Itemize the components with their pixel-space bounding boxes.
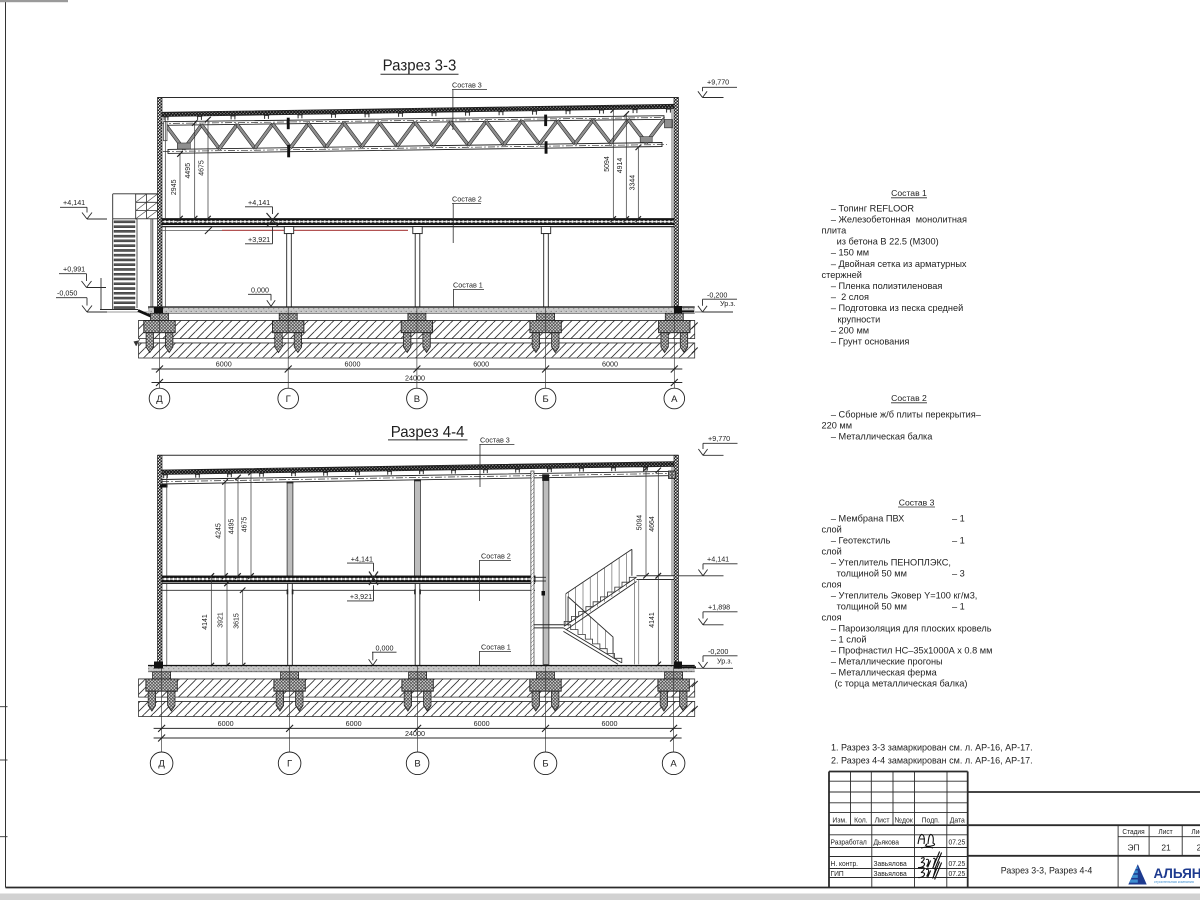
svg-text:– Подготовка из песка средней: – Подготовка из песка средней <box>831 303 963 313</box>
svg-text:-0,200: -0,200 <box>708 647 728 656</box>
svg-text:4495: 4495 <box>185 163 192 179</box>
svg-text:3344: 3344 <box>629 175 636 191</box>
svg-text:Состав 1: Состав 1 <box>891 188 927 198</box>
svg-text:4495: 4495 <box>229 519 236 535</box>
svg-text:ЭП: ЭП <box>1127 843 1139 853</box>
svg-text:слоя: слоя <box>822 580 842 590</box>
svg-text:Завьялова: Завьялова <box>874 860 907 868</box>
svg-text:Лист: Лист <box>875 815 890 824</box>
svg-text:– Утеплитель Эковер Y=100 кг/м: – Утеплитель Эковер Y=100 кг/м3, <box>831 591 977 601</box>
svg-text:4141: 4141 <box>649 612 656 628</box>
svg-text:слоя: слоя <box>822 613 842 623</box>
svg-text:Разрез 3-3, Разрез 4-4: Разрез 3-3, Разрез 4-4 <box>1001 865 1093 875</box>
svg-text:+9,770: +9,770 <box>707 78 729 87</box>
svg-text:1. Разрез 3-3 замаркирован см.: 1. Разрез 3-3 замаркирован см. л. АР-16,… <box>831 743 1033 753</box>
svg-text:Состав 3: Состав 3 <box>899 497 935 507</box>
svg-text:5094: 5094 <box>637 515 644 531</box>
svg-text:В: В <box>414 394 420 405</box>
svg-text:6000: 6000 <box>346 719 362 728</box>
svg-text:(с торца металлическая балка): (с торца металлическая балка) <box>835 679 968 689</box>
svg-text:Состав 3: Состав 3 <box>480 436 510 445</box>
svg-text:Состав 3: Состав 3 <box>452 81 482 90</box>
svg-text:4245: 4245 <box>216 523 223 539</box>
svg-text:Б: Б <box>542 394 548 405</box>
svg-text:2. Разрез 4-4 замаркирован см.: 2. Разрез 4-4 замаркирован см. л. АР-16,… <box>831 756 1033 766</box>
svg-text:Состав 2: Состав 2 <box>481 552 511 561</box>
svg-text:АЛЬЯНС: АЛЬЯНС <box>1154 866 1200 881</box>
svg-text:– 1: – 1 <box>952 602 965 612</box>
svg-text:Д: Д <box>156 394 163 405</box>
svg-text:+1,898: +1,898 <box>708 603 730 612</box>
svg-text:Состав 1: Состав 1 <box>453 281 483 290</box>
svg-text:-0,050: -0,050 <box>57 289 77 298</box>
svg-text:Д: Д <box>158 759 165 770</box>
svg-text:+3,921: +3,921 <box>248 235 270 244</box>
svg-text:А: А <box>670 759 677 770</box>
svg-text:Ур.з.: Ур.з. <box>717 657 733 666</box>
svg-text:6000: 6000 <box>602 360 618 369</box>
svg-text:толщиной 50 мм: толщиной 50 мм <box>837 602 907 612</box>
svg-text:– Грунт основания: – Грунт основания <box>831 337 910 347</box>
svg-text:6000: 6000 <box>216 360 232 369</box>
svg-text:6000: 6000 <box>345 360 361 369</box>
svg-text:2945: 2945 <box>171 179 178 195</box>
svg-text:Состав 2: Состав 2 <box>891 393 927 403</box>
svg-text:– 2 слоя: – 2 слоя <box>831 292 869 302</box>
svg-text:+4,141: +4,141 <box>351 554 373 563</box>
svg-text:+9,770: +9,770 <box>708 434 730 443</box>
svg-text:строительная компания: строительная компания <box>1154 880 1194 884</box>
svg-text:4675: 4675 <box>199 160 206 176</box>
svg-text:4141: 4141 <box>202 614 209 630</box>
svg-text:Г: Г <box>287 759 292 770</box>
svg-text:Г: Г <box>286 394 291 405</box>
svg-text:– 3: – 3 <box>952 569 965 579</box>
svg-text:6000: 6000 <box>602 719 618 728</box>
svg-text:Состав 2: Состав 2 <box>452 195 482 204</box>
svg-text:– 1: – 1 <box>952 514 965 524</box>
svg-text:21: 21 <box>1161 843 1171 853</box>
svg-text:Дата: Дата <box>950 815 966 824</box>
svg-text:– Металлическая балка: – Металлическая балка <box>831 432 933 442</box>
svg-text:толщиной 50 мм: толщиной 50 мм <box>837 569 907 579</box>
svg-text:6000: 6000 <box>474 719 490 728</box>
svg-text:Кол.: Кол. <box>854 815 868 824</box>
svg-text:3921: 3921 <box>218 612 225 628</box>
svg-text:– 1: – 1 <box>952 536 965 546</box>
svg-text:– 1 слой: – 1 слой <box>831 635 867 645</box>
svg-text:0,000: 0,000 <box>251 286 269 295</box>
svg-text:Лист: Лист <box>1158 829 1173 836</box>
svg-text:6000: 6000 <box>218 719 234 728</box>
svg-text:стержней: стержней <box>822 270 862 280</box>
svg-text:– Сборные ж/б плиты перекрытия: – Сборные ж/б плиты перекрытия– <box>831 410 982 420</box>
svg-text:2: 2 <box>1197 843 1200 853</box>
svg-text:– 200 мм: – 200 мм <box>831 325 869 335</box>
svg-text:– Металлическая ферма: – Металлическая ферма <box>831 668 938 678</box>
svg-text:07.25: 07.25 <box>949 860 966 868</box>
svg-text:В: В <box>414 759 420 770</box>
svg-text:Разрез 3-3: Разрез 3-3 <box>383 57 457 74</box>
svg-text:– 150 мм: – 150 мм <box>831 248 869 258</box>
svg-text:Разрез 4-4: Разрез 4-4 <box>391 424 465 441</box>
svg-text:плита: плита <box>822 226 848 236</box>
svg-text:24000: 24000 <box>405 373 425 382</box>
svg-text:слой: слой <box>822 525 842 535</box>
svg-text:07.25: 07.25 <box>949 838 966 846</box>
svg-text:– Железобетонная монолитная: – Железобетонная монолитная <box>831 214 967 224</box>
svg-text:+0,991: +0,991 <box>63 265 85 274</box>
svg-text:Дьякова: Дьякова <box>874 838 900 846</box>
svg-text:– Пленка полиэтиленовая: – Пленка полиэтиленовая <box>831 281 942 291</box>
svg-text:Подп.: Подп. <box>922 815 940 824</box>
svg-text:крупности: крупности <box>838 314 881 324</box>
svg-text:Состав 1: Состав 1 <box>481 643 511 652</box>
svg-text:слой: слой <box>822 547 842 557</box>
svg-text:24000: 24000 <box>405 729 425 738</box>
svg-text:Изм.: Изм. <box>832 815 847 824</box>
svg-text:07.25: 07.25 <box>949 870 966 878</box>
svg-text:4914: 4914 <box>617 158 624 174</box>
svg-text:0,000: 0,000 <box>376 643 394 652</box>
svg-text:3615: 3615 <box>233 613 240 629</box>
svg-text:Лис: Лис <box>1191 829 1200 836</box>
svg-text:из бетона В 22.5 (М300): из бетона В 22.5 (М300) <box>837 237 939 247</box>
svg-text:Н. контр.: Н. контр. <box>831 860 859 868</box>
svg-text:5094: 5094 <box>604 156 611 172</box>
svg-text:4664: 4664 <box>649 516 656 532</box>
svg-text:4675: 4675 <box>242 517 249 533</box>
svg-text:– Геотекстиль: – Геотекстиль <box>831 536 891 546</box>
svg-text:6000: 6000 <box>473 360 489 369</box>
svg-text:А: А <box>671 394 678 405</box>
svg-text:+4,141: +4,141 <box>707 555 729 564</box>
svg-text:– Металлические прогоны: – Металлические прогоны <box>831 657 943 667</box>
svg-text:– Профнастил НС–35х1000А х 0.8: – Профнастил НС–35х1000А х 0.8 мм <box>831 646 993 656</box>
svg-text:+3,921: +3,921 <box>350 592 372 601</box>
svg-text:Ур.з.: Ур.з. <box>720 299 736 308</box>
svg-text:– Двойная сетка из арматурных: – Двойная сетка из арматурных <box>831 259 967 269</box>
svg-text:+4,141: +4,141 <box>63 198 85 207</box>
svg-text:Разработал: Разработал <box>831 838 867 846</box>
svg-text:Б: Б <box>542 759 548 770</box>
svg-text:220 мм: 220 мм <box>822 421 853 431</box>
svg-text:– Мембрана ПВХ: – Мембрана ПВХ <box>831 514 904 524</box>
svg-text:– Топинг REFLOOR: – Топинг REFLOOR <box>831 203 915 213</box>
svg-text:– Пароизоляция для плоских кро: – Пароизоляция для плоских кровель <box>831 624 992 634</box>
svg-text:№док: №док <box>895 815 914 824</box>
svg-text:ГИП: ГИП <box>831 870 844 878</box>
svg-text:+4,141: +4,141 <box>248 198 270 207</box>
svg-text:– Утеплитель ПЕНОПЛЭКС,: – Утеплитель ПЕНОПЛЭКС, <box>831 558 951 568</box>
svg-text:Завьялова: Завьялова <box>874 870 907 878</box>
svg-text:Стадия: Стадия <box>1122 829 1144 836</box>
